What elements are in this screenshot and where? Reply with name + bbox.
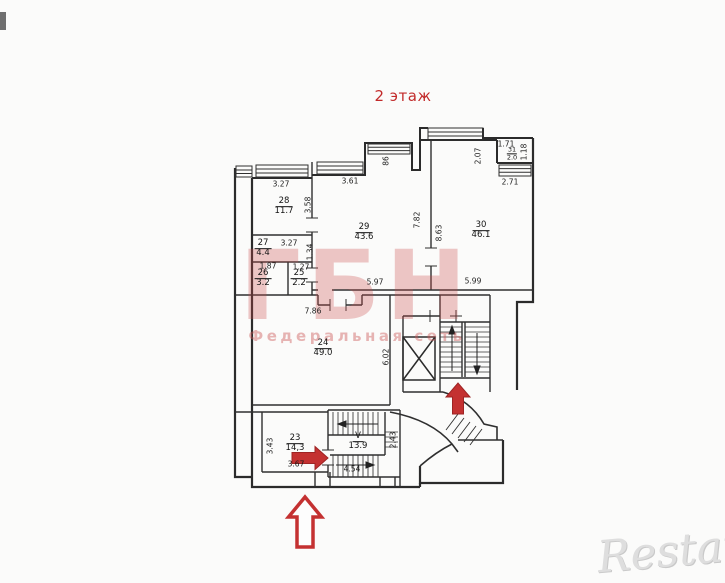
- room-area: 46.1: [472, 232, 491, 241]
- dim-room29-right: 7.82: [413, 212, 422, 229]
- room-label-24: 24 49.0: [314, 339, 333, 359]
- dim-room25-top: 1.27: [293, 263, 310, 272]
- room-area: 14,3: [286, 445, 305, 454]
- dim-room30-top: 2.71: [502, 178, 519, 187]
- stairwell-area: 13.9: [349, 443, 368, 452]
- dim-room31-left: 2.07: [474, 148, 483, 165]
- room-area: 49.0: [314, 350, 333, 359]
- dim-room29-notch: 86: [382, 156, 391, 166]
- room-label-26: 26 3.2: [255, 269, 272, 289]
- stairwell-label: V 13.9: [349, 432, 368, 452]
- dim-room24-right: 6.02: [382, 349, 391, 366]
- scan-artifact: [0, 12, 6, 30]
- room-label-28: 28 11.7: [275, 197, 294, 217]
- room-area: 2.0: [507, 155, 517, 162]
- dim-room29-bottom: 5.97: [367, 278, 384, 287]
- dim-room23-left: 3.43: [266, 438, 275, 455]
- room-label-29: 29 43.6: [355, 223, 374, 243]
- dim-stair-bottom: 4.54: [344, 465, 361, 474]
- room-label-31: 31 2.0: [507, 146, 517, 161]
- plan-labels: 28 11.7 27 4.4 26 3.2 25 2.2 29 43.6 30 …: [0, 0, 725, 580]
- dim-room31-width: 1.71: [498, 140, 515, 149]
- room-area: 2.2: [291, 280, 308, 289]
- room-label-30: 30 46.1: [472, 221, 491, 241]
- dim-room30-left: 8.63: [435, 225, 444, 242]
- dim-room24-top: 7.86: [305, 307, 322, 316]
- dim-room30-bottom: 5.99: [465, 277, 482, 286]
- dim-room28-right: 3.58: [304, 197, 313, 214]
- dim-stair-right: 2.43: [389, 432, 398, 449]
- dim-room28-top: 3.27: [273, 180, 290, 189]
- dim-room23-bottom: 3.67: [288, 460, 305, 469]
- room-area: 4.4: [255, 250, 272, 259]
- dim-room31-height: 1.18: [520, 144, 529, 161]
- room-area: 3.2: [255, 280, 272, 289]
- room-label-25: 25 2.2: [291, 269, 308, 289]
- room-area: 43.6: [355, 234, 374, 243]
- dim-room26-top: 1.87: [260, 262, 277, 271]
- room-area: 11.7: [275, 208, 294, 217]
- dim-room27-right: 1.34: [306, 244, 315, 261]
- floorplan-scan: 2 этаж: [0, 0, 725, 580]
- dim-room29-top: 3.61: [342, 177, 359, 186]
- room-label-27: 27 4.4: [255, 239, 272, 259]
- room-label-23: 23 14,3: [286, 434, 305, 454]
- dim-room27-top: 3.27: [281, 239, 298, 248]
